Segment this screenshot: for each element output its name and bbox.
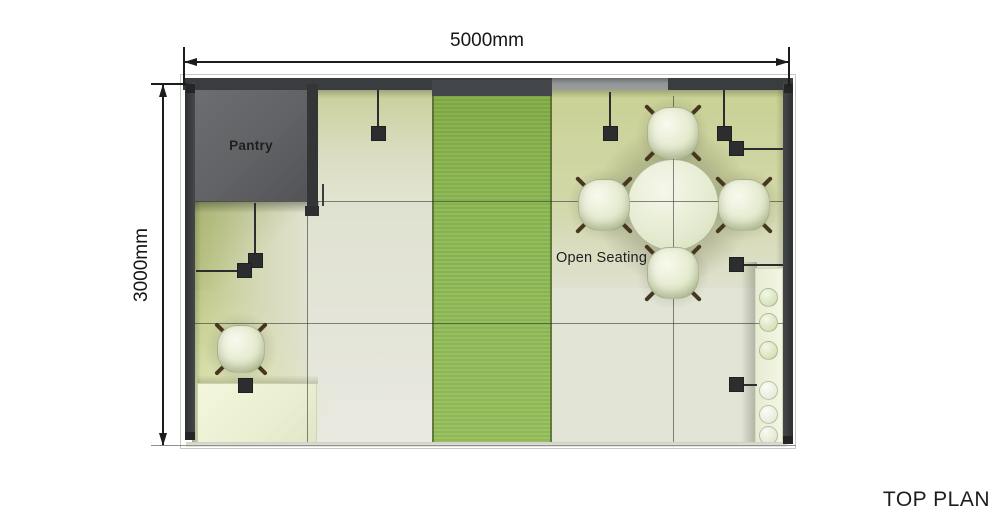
light-stem [196,270,238,272]
light-stem [609,92,611,127]
dimension-line-width [184,61,789,63]
cabinet-item [759,405,778,424]
cabinet-item [759,288,778,307]
extension-tick [183,47,185,86]
light-stem [744,264,785,266]
chair-seat [217,325,265,373]
extension-tick [788,47,790,86]
chair-right [718,179,770,231]
baseline [151,445,796,446]
carpet-strip-header [432,80,552,96]
wall-left [185,82,195,438]
pantry-partition-wall [307,84,318,208]
arrow-right-icon [776,58,789,66]
corner-post [783,436,793,444]
grid-line-horizontal-1 [192,201,785,202]
desk [197,383,317,443]
chair-seat [718,179,770,231]
light-stem [744,384,757,386]
pantry-door-leaf [322,184,324,206]
chair-seat [647,247,699,299]
light-stem [254,203,256,254]
open-seating-label: Open Seating [556,250,647,266]
width-dimension-label: 5000mm [387,30,587,52]
dimension-line-height [162,84,164,446]
grid-line-horizontal-2 [192,323,785,324]
pantry-room: Pantry [195,90,307,201]
chair-left [578,179,630,231]
light-stem [377,90,379,127]
corner-post [185,432,195,440]
cabinet-item [759,313,778,332]
light-stem [723,90,725,127]
corner-post [186,84,195,93]
light-fixture [371,126,386,141]
light-fixture [603,126,618,141]
light-stem [744,148,785,150]
cabinet-item [759,341,778,360]
extension-tick [151,83,186,85]
height-dimension-label: 3000mm [131,165,153,365]
pantry-door-frame [305,206,319,216]
page-title: TOP PLAN [830,488,990,512]
arrow-left-icon [184,58,197,66]
light-fixture [729,141,744,156]
wall-right [783,82,793,443]
chair-top [647,107,699,159]
pantry-label: Pantry [229,138,273,153]
light-fixture [729,257,744,272]
light-fixture [729,377,744,392]
cabinet-item [759,381,778,400]
floor-plan: Pantry [0,0,1000,527]
floor-patch-upper-left [318,88,432,201]
arrow-down-icon [159,433,167,446]
arrow-up-icon [159,84,167,97]
chair-seat [647,107,699,159]
light-fixture [717,126,732,141]
light-fixture [237,263,252,278]
chair-bottom [647,247,699,299]
light-fixture [238,378,253,393]
wall-top-glass-segment [552,78,668,90]
carpet-strip [432,96,552,443]
desk-chair [217,325,265,373]
chair-seat [578,179,630,231]
